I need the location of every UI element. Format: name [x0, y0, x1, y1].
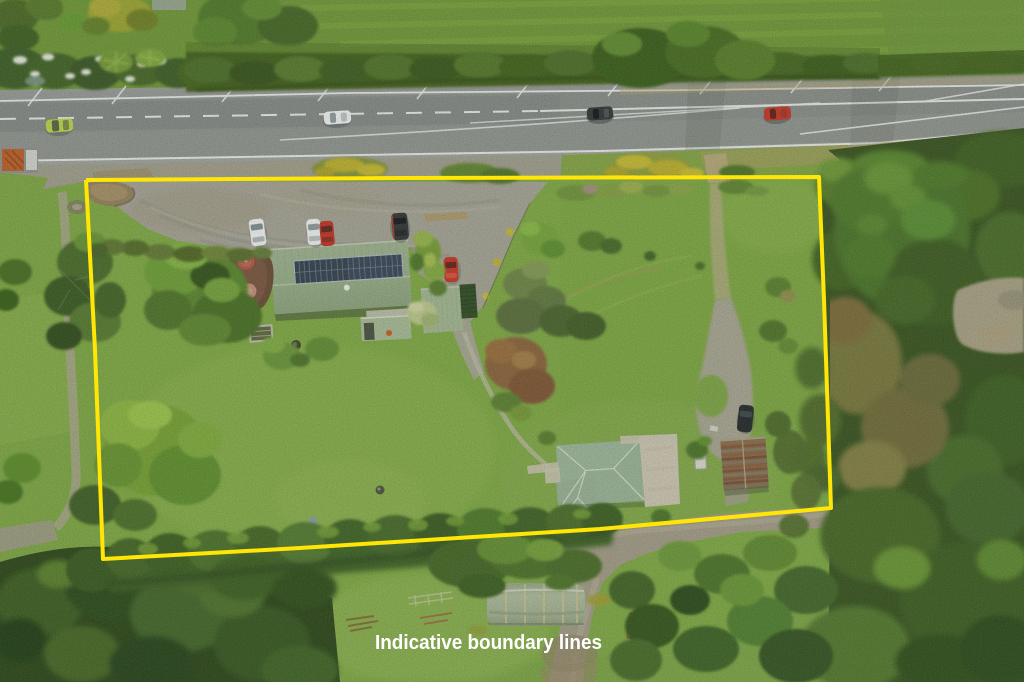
svg-text:Indicative boundary lines: Indicative boundary lines	[375, 631, 602, 654]
